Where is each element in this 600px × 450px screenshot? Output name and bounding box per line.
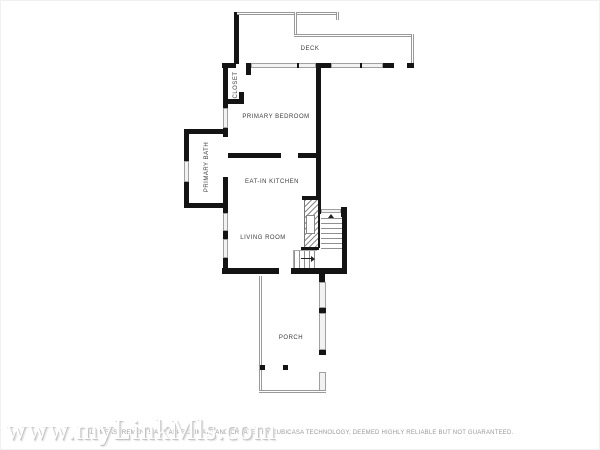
- wall: [341, 207, 347, 217]
- window: [184, 161, 189, 182]
- window: [251, 63, 316, 68]
- room-label-deck: DECK: [301, 46, 320, 52]
- window: [319, 282, 326, 308]
- porch-railing: [259, 390, 326, 393]
- window: [331, 63, 383, 68]
- room-label-closet: CLOSET: [233, 71, 239, 98]
- wall: [228, 153, 281, 158]
- stair-direction-arrow-up: [328, 214, 334, 218]
- deck-railing: [336, 12, 339, 20]
- room-label-primary-bedroom: PRIMARY BEDROOM: [242, 114, 309, 120]
- wall: [223, 231, 228, 239]
- room-label-primary-bath: PRIMARY BATH: [204, 142, 210, 192]
- room-label-eat-in-kitchen: EAT-IN KITCHEN: [245, 179, 299, 185]
- wall: [184, 134, 189, 161]
- wall: [239, 92, 244, 99]
- window: [319, 313, 326, 350]
- stair-direction-arrow-right: [311, 256, 315, 262]
- window: [321, 209, 341, 213]
- wall: [407, 63, 414, 68]
- wall: [222, 268, 279, 274]
- wall: [383, 63, 394, 68]
- porch-railing: [259, 276, 262, 393]
- wall: [316, 63, 321, 200]
- window: [223, 213, 228, 231]
- porch-post: [260, 365, 265, 370]
- room-label-porch: PORCH: [279, 335, 303, 341]
- stair-landing-box: [306, 215, 315, 234]
- floor-plan-page: DECK CLOSET PRIMARY BEDROOM PRIMARY BATH…: [0, 0, 600, 450]
- porch-post: [283, 365, 288, 370]
- window-mullion: [360, 63, 362, 68]
- room-label-living-room: LIVING ROOM: [240, 235, 286, 241]
- wall: [319, 274, 325, 282]
- wall: [184, 203, 228, 208]
- wall: [184, 182, 189, 203]
- wall: [227, 99, 244, 104]
- wall: [342, 217, 347, 274]
- wall: [184, 129, 228, 134]
- deck-railing: [411, 34, 414, 64]
- wall: [234, 12, 239, 64]
- watermark-text: www.myLinkMls.com: [6, 415, 276, 447]
- deck-railing: [294, 34, 414, 37]
- window: [223, 108, 228, 128]
- staircase-up-treads: [321, 218, 342, 249]
- window: [223, 239, 228, 258]
- wall: [319, 350, 326, 355]
- deck-railing: [237, 12, 339, 15]
- window-mullion: [297, 63, 299, 68]
